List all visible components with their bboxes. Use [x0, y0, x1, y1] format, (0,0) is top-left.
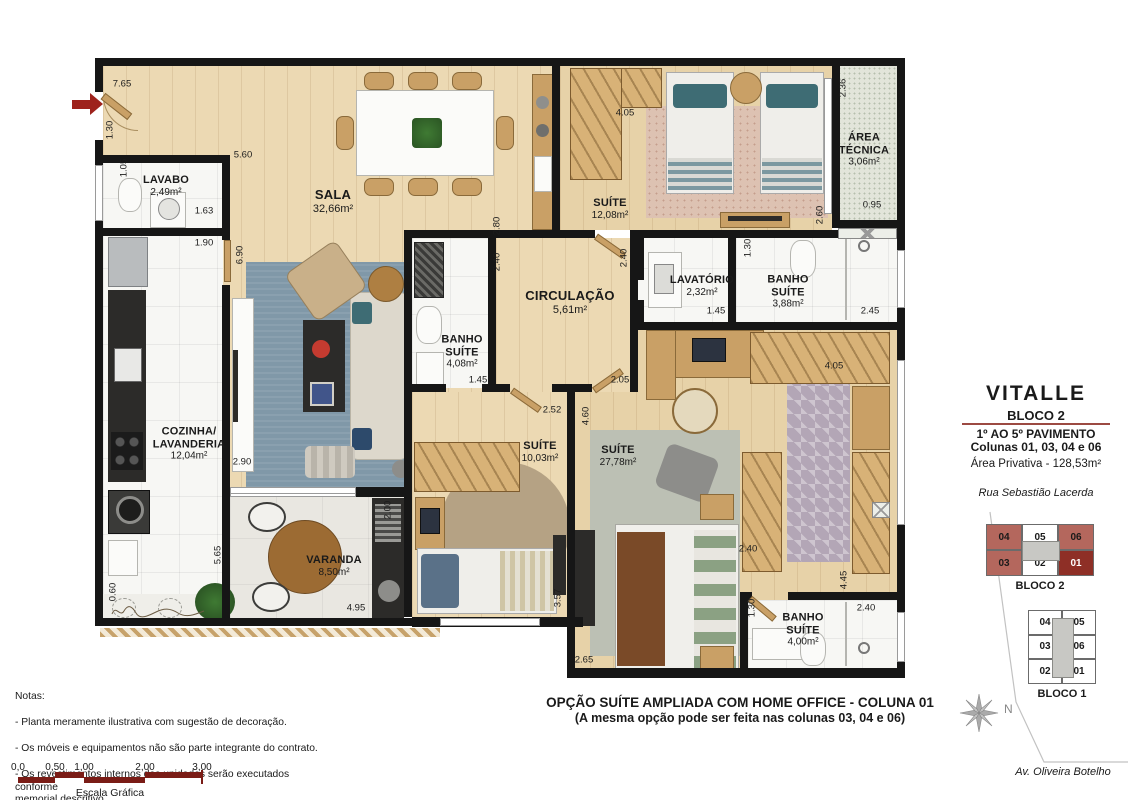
wall	[636, 300, 644, 322]
pouf	[305, 446, 355, 478]
unit-04: 04	[986, 524, 1022, 550]
dim-label: 2.90	[233, 457, 252, 468]
dining-chair	[452, 178, 482, 196]
room-label-sala: SALA32,66m²	[313, 188, 353, 216]
brand-title: VITALLE	[986, 382, 1086, 406]
dim-label: 4.45	[839, 571, 850, 590]
dim-label: 1.90	[195, 238, 214, 249]
dining-chair	[364, 178, 394, 196]
dim-label: 1.45	[707, 306, 726, 317]
toilet	[790, 240, 816, 278]
wall	[552, 58, 560, 230]
dining-chair	[364, 72, 394, 90]
dining-chair	[408, 178, 438, 196]
wall	[103, 228, 230, 236]
table-book-decor	[310, 382, 334, 406]
nightstand	[730, 72, 762, 104]
dim-label: 1.63	[195, 206, 214, 217]
shower-head	[858, 642, 870, 654]
wall	[356, 487, 412, 497]
plan-caption-line1: OPÇÃO SUÍTE AMPLIADA COM HOME OFFICE - C…	[546, 695, 934, 710]
bed-pillow	[673, 84, 727, 108]
bed-blanket-brown	[617, 532, 665, 666]
bed-blanket	[668, 158, 732, 190]
wall	[552, 384, 592, 392]
wall	[95, 58, 103, 92]
dim-label: 2.65	[575, 655, 594, 666]
suite10-tv	[553, 535, 566, 595]
room-label-lavabo: LAVABO2,49m²	[143, 174, 189, 198]
wall	[788, 592, 897, 600]
dim-label: 2.40	[619, 249, 630, 268]
lavabo-sink	[158, 198, 180, 220]
counter-sink	[536, 124, 549, 137]
dim-label: 2.40	[739, 544, 758, 555]
window	[897, 612, 905, 662]
bloco-title: BLOCO 2	[1007, 408, 1065, 423]
room-label-lavatorio: LAVATÓRIO2,32m²	[670, 274, 734, 298]
street-name-bottom: Av. Oliveira Botelho	[1015, 766, 1111, 778]
bed-blanket	[762, 158, 822, 190]
architect-signature	[108, 602, 208, 620]
window	[897, 360, 905, 525]
entry-arrow	[72, 100, 90, 109]
fridge	[108, 237, 148, 287]
laptop	[692, 338, 726, 362]
door-leaf-kitchen	[224, 240, 231, 282]
room-label-banho388: BANHO SUÍTE3,88m²	[767, 274, 808, 311]
room-label-circulacao: CIRCULAÇÃO5,61m²	[525, 289, 614, 317]
dim-label: 2.60	[815, 206, 826, 225]
scale-bar-segment	[84, 777, 145, 783]
suite12-wardrobe	[570, 68, 622, 180]
scale-caption: Escala Gráfica	[76, 787, 144, 799]
home-office-desk-return	[646, 330, 676, 400]
dim-label: 4.95	[347, 603, 366, 614]
bed-pillow	[421, 554, 459, 608]
tv-screen	[233, 350, 238, 422]
master-closet	[750, 332, 890, 384]
sliding-door-varanda	[230, 487, 356, 497]
wall	[222, 155, 230, 240]
cooktop	[111, 432, 143, 470]
dining-chair	[408, 72, 438, 90]
outdoor-edge-hatch	[100, 628, 440, 637]
note-item: - Os móveis e equipamentos não são parte…	[15, 743, 325, 756]
grill-sink	[378, 580, 400, 602]
unit-06: 06	[1058, 524, 1094, 550]
room-label-banho400: BANHO SUÍTE4,00m²	[782, 612, 823, 649]
wall	[496, 384, 510, 392]
keyplan-bloco2-label: BLOCO 2	[1016, 580, 1065, 592]
dim-label: 4.05	[616, 108, 635, 119]
shower-divider	[845, 602, 847, 666]
nightstand	[700, 494, 734, 520]
elevator-core-bloco2	[1022, 541, 1060, 561]
kitchen-sink	[114, 348, 142, 382]
wall	[832, 220, 905, 228]
toilet	[416, 306, 442, 344]
vent-grille	[838, 228, 897, 239]
room-label-banho408: BANHO SUÍTE4,08m²	[441, 334, 482, 371]
shower-divider	[845, 232, 847, 320]
wall	[636, 238, 644, 280]
room-label-area-tecnica: ÁREA TÉCNICA3,06m²	[839, 132, 889, 169]
wall	[404, 384, 446, 392]
plan-caption-line2: (A mesma opção pode ser feita nas coluna…	[575, 711, 905, 725]
entry-arrow-head	[90, 93, 103, 115]
room-label-suite12: SUÍTE12,08m²	[592, 197, 629, 221]
keyplan-bloco1-label: BLOCO 1	[1038, 688, 1087, 700]
unit-03: 03	[986, 550, 1022, 576]
suite12-tv	[728, 216, 782, 221]
window	[440, 618, 540, 626]
scale-tick-label: 0,0	[11, 762, 25, 773]
dim-label: 7.65	[113, 79, 132, 90]
dim-label: 6.90	[235, 246, 246, 265]
scale-bar-segment	[18, 777, 55, 783]
dim-label: 4.60	[581, 407, 592, 426]
scale-bar-segment	[145, 772, 202, 778]
nightstand	[700, 646, 734, 670]
flower-decor	[312, 340, 330, 358]
room-label-cozinha: COZINHA/ LAVANDERIA12,04m²	[153, 426, 225, 463]
window	[95, 165, 103, 221]
counter-sink	[536, 96, 549, 109]
sofa-pillow	[352, 428, 372, 450]
laundry-tank	[108, 540, 138, 576]
shower-head	[858, 240, 870, 252]
unit-01: 01	[1058, 550, 1094, 576]
sofa-pillow	[352, 302, 372, 324]
colunas-label: Colunas 01, 03, 04 e 06	[971, 440, 1102, 454]
bathroom-sink	[416, 352, 444, 386]
dining-chair	[452, 72, 482, 90]
notes-title: Notas:	[15, 691, 325, 704]
room-label-suite10: SUÍTE10,03m²	[522, 440, 559, 464]
room-label-suite-master: SUÍTE27,78m²	[600, 444, 637, 468]
dim-label: 4.05	[825, 361, 844, 372]
wall	[567, 668, 905, 678]
dim-label: 2.45	[861, 306, 880, 317]
floorplan-sheet: LAVABO2,49m² SALA32,66m² SUÍTE12,08m² ÁR…	[0, 0, 1131, 800]
bed-pillow	[766, 84, 818, 108]
compass-north-label: N	[1004, 702, 1013, 716]
side-table	[368, 266, 404, 302]
street-name-top: Rua Sebastião Lacerda	[979, 487, 1094, 499]
wall	[567, 392, 575, 617]
scale-bar-segment	[55, 772, 84, 778]
suite10-wardrobe	[414, 442, 520, 492]
notes-block: Notas: - Planta meramente ilustrativa co…	[15, 678, 325, 800]
dim-label: 2.05	[611, 375, 630, 386]
window	[824, 78, 832, 214]
scale-bar-end-tick	[201, 770, 203, 784]
dim-label: 2.36	[838, 79, 849, 98]
shower	[414, 242, 444, 298]
master-closet-column	[852, 386, 890, 450]
dining-chair	[336, 116, 354, 150]
panel-divider	[962, 423, 1110, 425]
dim-label: 1.30	[743, 239, 754, 258]
dim-label: 5.60	[234, 150, 253, 161]
bed-blanket	[500, 551, 554, 611]
toilet	[118, 178, 142, 212]
master-runner-rug	[787, 372, 850, 562]
dim-label: 1.05	[119, 159, 130, 178]
dim-label: 2.00	[383, 501, 394, 520]
dim-label: 1.45	[469, 375, 488, 386]
table-plant	[412, 118, 442, 148]
dim-label: 0.95	[863, 200, 882, 211]
wall	[404, 230, 412, 617]
elevator-core-bloco1	[1052, 618, 1074, 678]
dining-chair	[496, 116, 514, 150]
shaft-box	[872, 502, 890, 518]
note-item: - Planta meramente ilustrativa com suges…	[15, 717, 325, 730]
dim-label: 1.30	[747, 599, 758, 618]
dim-label: 1.30	[105, 121, 116, 140]
dim-label: 0.60	[108, 583, 119, 602]
dim-label: 3.57	[553, 589, 564, 608]
varanda-chair	[252, 582, 290, 612]
pavimento-label: 1º AO 5º PAVIMENTO	[976, 427, 1095, 441]
master-tv-console	[575, 530, 595, 626]
varanda-chair	[248, 502, 286, 532]
office-chair	[672, 388, 718, 434]
dim-label: 2.80	[492, 217, 503, 236]
washer-door	[116, 496, 144, 524]
dim-label: 2.40	[857, 603, 876, 614]
dim-label: 2.52	[543, 405, 562, 416]
room-label-varanda: VARANDA8,50m²	[306, 554, 362, 578]
compass-icon	[958, 692, 1000, 734]
wall	[636, 322, 905, 330]
suite10-computer	[420, 508, 440, 534]
window	[897, 250, 905, 308]
dim-label: 5.65	[213, 546, 224, 565]
cooktop-gourmet	[534, 156, 552, 192]
dim-label: 2.40	[492, 253, 503, 272]
area-privativa-label: Área Privativa - 128,53m²	[971, 458, 1101, 470]
wall	[95, 58, 905, 66]
